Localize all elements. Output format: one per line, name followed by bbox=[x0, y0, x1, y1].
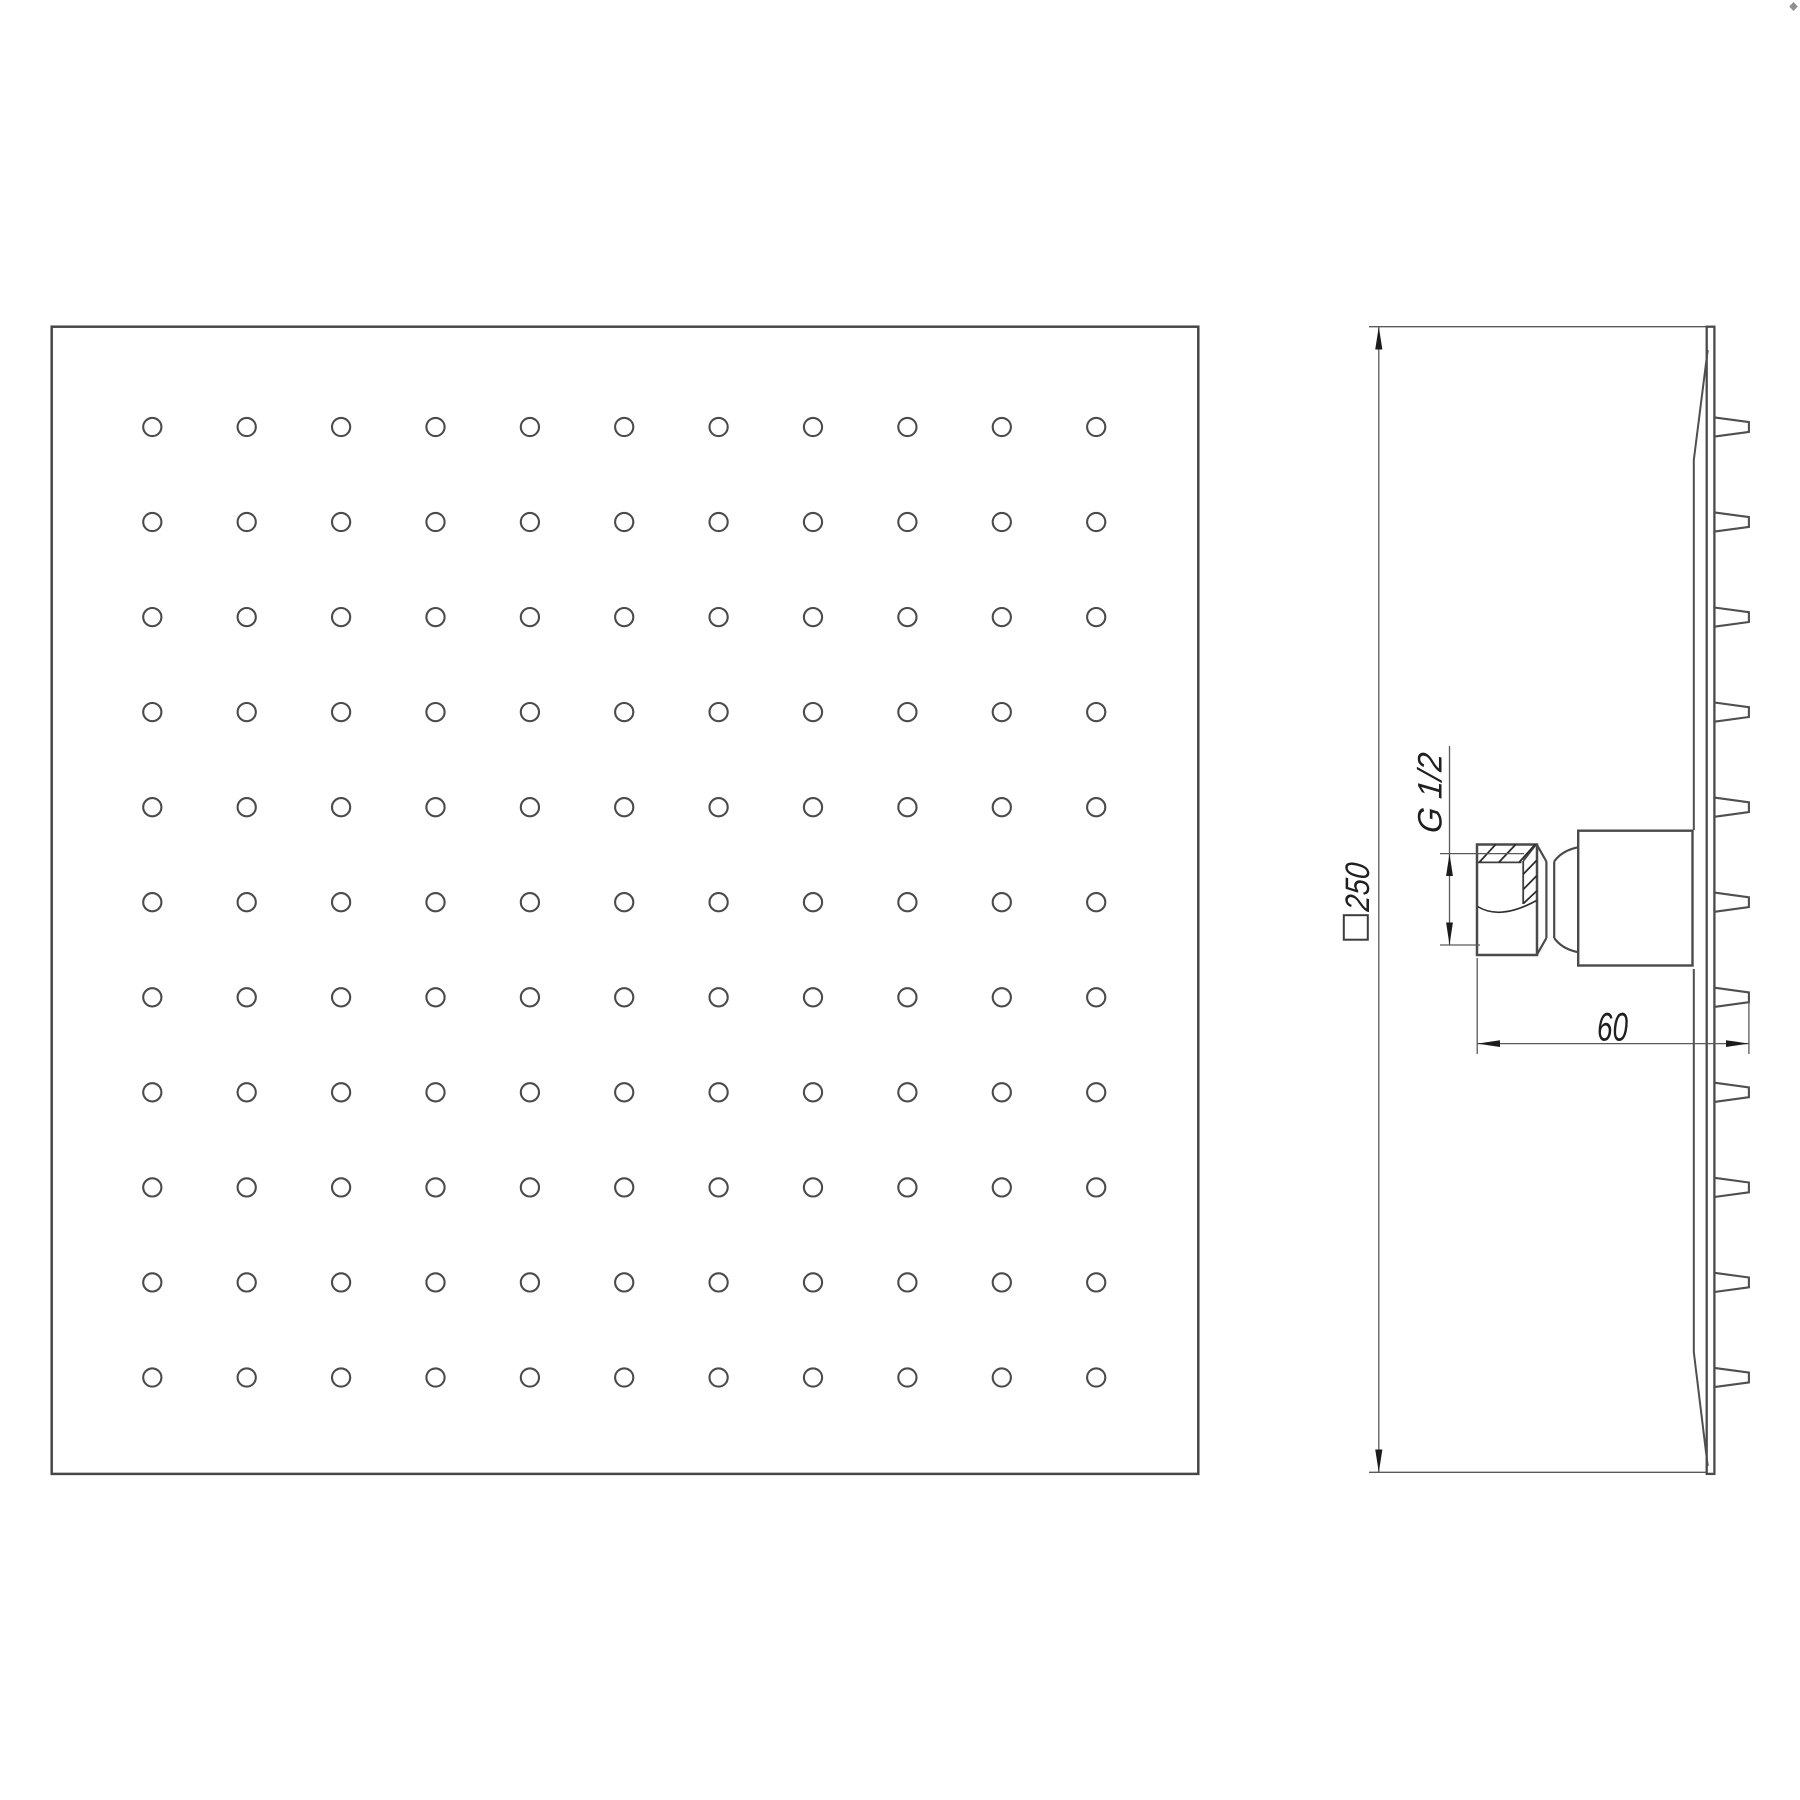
svg-text:G 1/2: G 1/2 bbox=[1412, 751, 1450, 835]
svg-text:250: 250 bbox=[1339, 861, 1377, 914]
svg-text:60: 60 bbox=[1597, 1006, 1628, 1050]
